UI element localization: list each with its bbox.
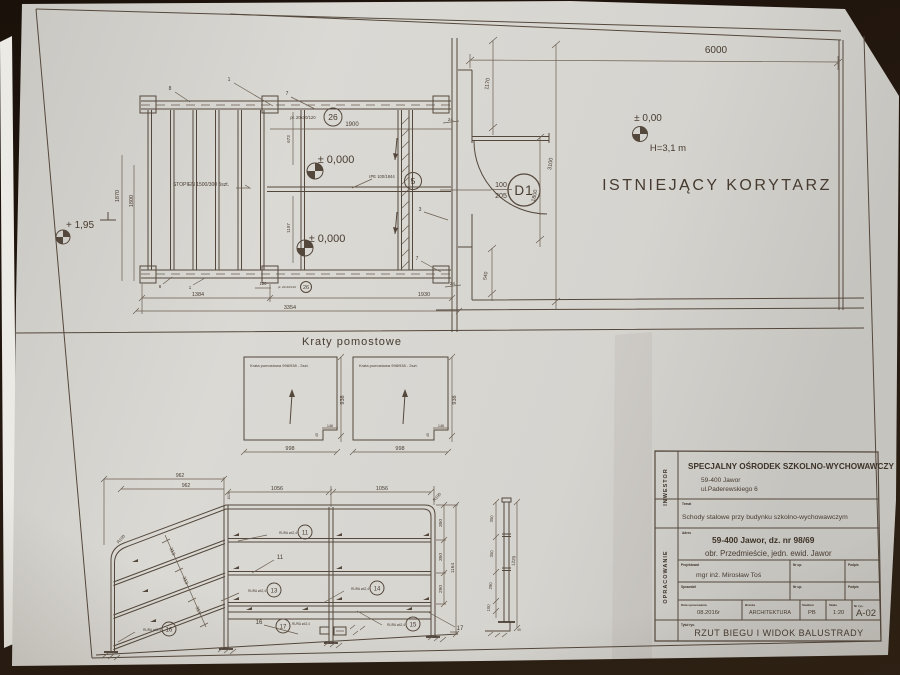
bal-item-16: 16 [166, 628, 173, 634]
grating-dim-938-2: 938 [452, 395, 458, 404]
titleblock-investor-addr1: 59-400 Jawor [701, 477, 741, 484]
door-tag: D1 [514, 183, 533, 198]
bal-item-15: 15 [410, 623, 417, 629]
titleblock-data-label: Data opracowania [681, 603, 707, 607]
dim-120: 120 [260, 281, 268, 286]
grating-panel-label-2: Krata pomostowa 998/938 - 2szt. [359, 363, 418, 368]
corridor-height-note: H=3,1 m [650, 143, 686, 154]
dim-24-top: 24. [448, 117, 454, 122]
grating-dim-998-1: 998 [285, 446, 294, 452]
titleblock-sprawdzil-label: Sprawdził [681, 585, 696, 589]
bal-dim-1028: 1028 [227, 492, 231, 499]
dim-1900: 1900 [345, 122, 359, 128]
plate-item-small-bubble: 26 [303, 285, 309, 291]
bal-ref-17: 17 [457, 626, 464, 632]
grating-panel-label-1: Krata pomostowa 998/938 - 2szt. [250, 363, 309, 368]
ref-7a: 7 [286, 91, 289, 97]
dim-1197: 1197 [286, 223, 291, 233]
bal-dim-962-outer: 962 [176, 473, 185, 479]
titleblock-projektowal-label: Projektował [681, 563, 699, 567]
dim-673: 673 [286, 135, 291, 143]
titleblock-tytul: RZUT BIEGU I WIDOK BALUSTRADY [694, 628, 863, 638]
door-width: 100 [495, 182, 507, 189]
titleblock-temat: Schody stalowe przy budynku szkolno-wych… [682, 514, 848, 521]
bal-ref-11: 11 [277, 555, 284, 561]
titleblock-branza-label: Branża [745, 603, 755, 607]
bal-tube-label-17: RURA ø42,4 [292, 622, 310, 626]
dim-1870: 1870 [115, 190, 121, 202]
bal-dim-1164: 1164 [450, 563, 456, 574]
titleblock-branza: ARCHITEKTURA [749, 610, 791, 616]
titleblock-investor-addr2: ul.Paderewskiego 6 [701, 486, 758, 493]
level-zero-b: ± 0,000 [309, 233, 346, 245]
grating-dim-938-1: 938 [340, 395, 346, 404]
dim-540: 540 [482, 271, 489, 280]
grating-dim-45-2: 45 [426, 433, 430, 437]
photo-of-drawing: + 1,95 ± 0,000 ± 0,000 STOPIEŃ 1500/300 … [0, 0, 900, 675]
plate-note: pł. 20x10/120 [290, 115, 316, 120]
bal-tube-label-13: RURA ø42,4 [248, 589, 266, 593]
post-dim-1220: 1220 [511, 555, 517, 566]
plate-note-small: pł. 20x10/120 [278, 285, 296, 289]
grating-dim-998-2: 998 [395, 446, 404, 452]
paper-fold-shade [612, 332, 652, 661]
titleblock-tytul-label: Tytuł rys. [681, 623, 695, 627]
ref-7b: 7 [416, 256, 419, 262]
dim-1384: 1384 [192, 292, 204, 298]
titleblock-stadium: PB [808, 610, 816, 616]
dim-6000: 6000 [705, 45, 728, 56]
beam-note: IPE 100/1844 [369, 174, 395, 179]
titleblock-adres-label: Adres [682, 531, 691, 535]
post-dim-350-2: 350 [489, 550, 495, 558]
drawing-sheet: + 1,95 ± 0,000 ± 0,000 STOPIEŃ 1500/300 … [0, 0, 900, 675]
post-dim-350-1: 350 [489, 515, 495, 523]
bal-item-14: 14 [374, 587, 381, 593]
plate-item-bubble: 26 [328, 112, 338, 122]
corridor-level: ± 0,00 [634, 113, 662, 124]
dim-1930: 1930 [418, 292, 430, 298]
bal-item-13: 13 [271, 589, 278, 595]
bal-dim-290: 290 [438, 585, 444, 593]
post-dim-290: 290 [488, 582, 494, 590]
titleblock-adres2: obr. Przedmieście, jedn. ewid. Jawor [705, 549, 832, 558]
bal-dim-1056-left: 1056 [271, 486, 283, 492]
beam-item-bubble: 5 [411, 176, 416, 186]
post-dim-45: 45 [517, 628, 521, 632]
gratings-title: Kraty pomostowe [302, 336, 402, 348]
bal-dim-1056-right: 1056 [376, 486, 388, 492]
titleblock-data: 08.2016r [697, 610, 720, 616]
bal-tube-label-16: RURA ø42,4 [143, 628, 161, 632]
titleblock-nr-rys: A-02 [856, 608, 876, 619]
ref-8a: 8 [169, 86, 172, 92]
bal-tube-label-11: RURA ø42,4 [279, 531, 297, 535]
titleblock-investor-label: INWESTOR [663, 468, 669, 506]
dim-3354: 3354 [284, 305, 296, 311]
titleblock-projektowal: mgr inż. Mirosław Toś [696, 572, 762, 579]
titleblock-temat-label: Temat [682, 502, 692, 506]
titleblock-opracowanie-label: OPRACOWANIE [663, 550, 669, 603]
dim-1800: 1800 [129, 195, 135, 207]
ref-1a: 1 [228, 77, 231, 83]
titleblock-podpis-label-2: Podpis [848, 585, 859, 589]
grating-dim-146-2: 146 [438, 424, 444, 428]
grating-dim-45-1: 45 [315, 433, 319, 437]
bal-ref-16: 16 [256, 620, 263, 626]
ref-3: 3 [419, 207, 422, 213]
titleblock-adres1: 59-400 Jawor, dz. nr 98/69 [712, 535, 815, 545]
titleblock-nr-up-label-2: Nr up. [793, 585, 802, 589]
tread-note: STOPIEŃ 1500/300 5szt. [173, 181, 229, 188]
corridor-room-label: ISTNIEJĄCY KORYTARZ [602, 177, 832, 194]
titleblock-podpis-label-1: Podpis [848, 563, 859, 567]
titleblock-skala-label: Skala [829, 603, 837, 607]
bal-dim-962-inner: 962 [182, 483, 191, 489]
titleblock-skala: 1:20 [833, 610, 844, 616]
titleblock-nr-up-label-1: Nr up. [793, 563, 802, 567]
bal-dim-350-2: 350 [438, 553, 444, 561]
bal-tube-label-14: RURA ø42,4 [351, 587, 369, 591]
door-height: 205 [495, 193, 507, 200]
level-zero-a: ± 0,000 [318, 154, 355, 166]
bal-dim-350-1: 350 [438, 519, 444, 527]
bal-item-17: 17 [280, 625, 287, 631]
bal-item-11: 11 [302, 531, 309, 537]
titleblock-stadium-label: Stadium [802, 603, 814, 607]
grating-dim-146-1: 146 [327, 424, 333, 428]
bal-tube-label-15: RURA ø42,4 [387, 623, 405, 627]
dim-24-bottom: 24. [450, 281, 456, 286]
titleblock-investor: SPECJALNY OŚRODEK SZKOLNO-WYCHOWAWCZY [688, 460, 894, 471]
post-dim-100: 100 [486, 604, 492, 612]
level-plus-195: + 1,95 [66, 220, 95, 231]
